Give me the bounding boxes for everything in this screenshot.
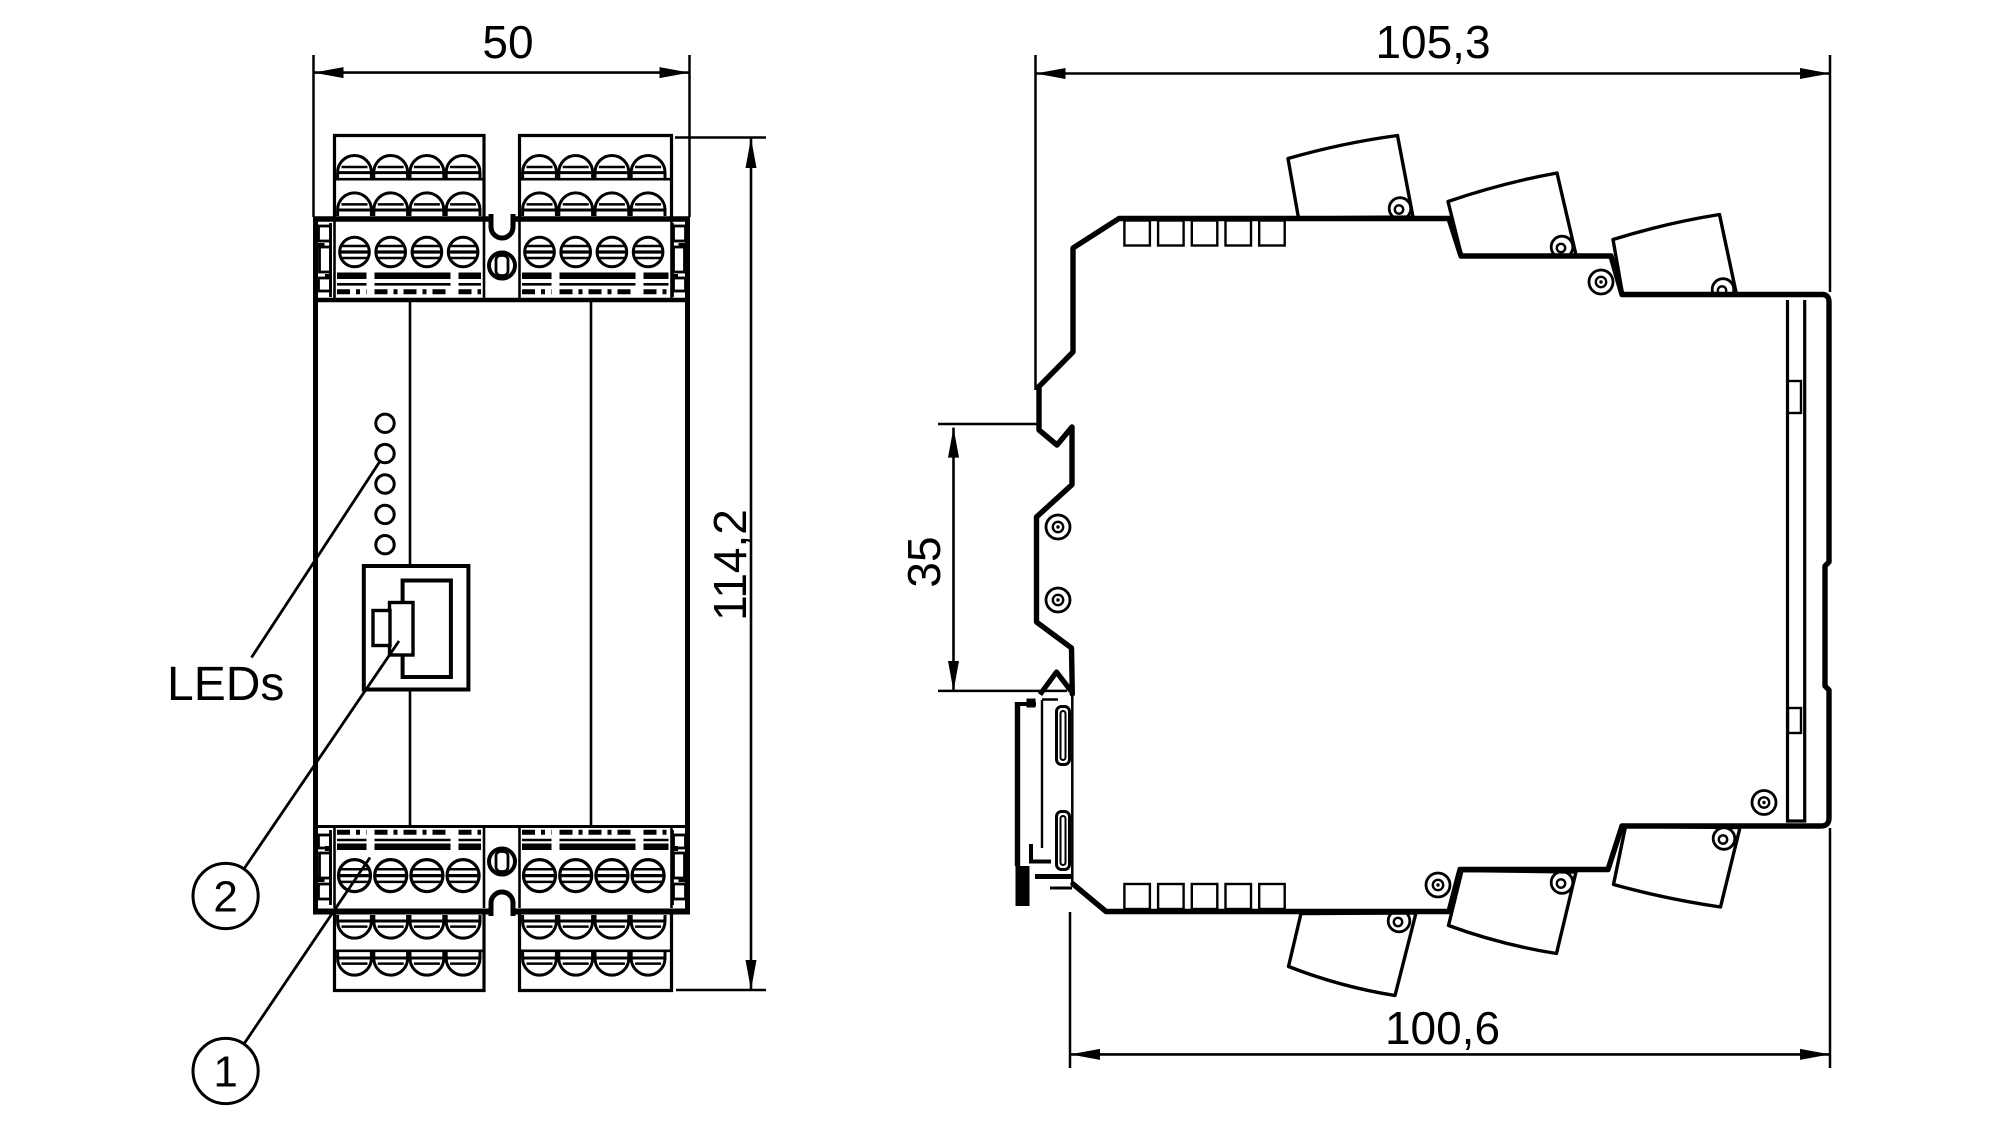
svg-text:50: 50 <box>482 16 533 68</box>
svg-text:105,3: 105,3 <box>1375 16 1490 68</box>
svg-text:LEDs: LEDs <box>167 658 284 711</box>
svg-text:1: 1 <box>213 1048 237 1097</box>
svg-text:114,2: 114,2 <box>704 509 756 621</box>
svg-text:100,6: 100,6 <box>1385 1002 1500 1054</box>
svg-text:2: 2 <box>213 873 237 922</box>
svg-text:35: 35 <box>898 536 950 587</box>
